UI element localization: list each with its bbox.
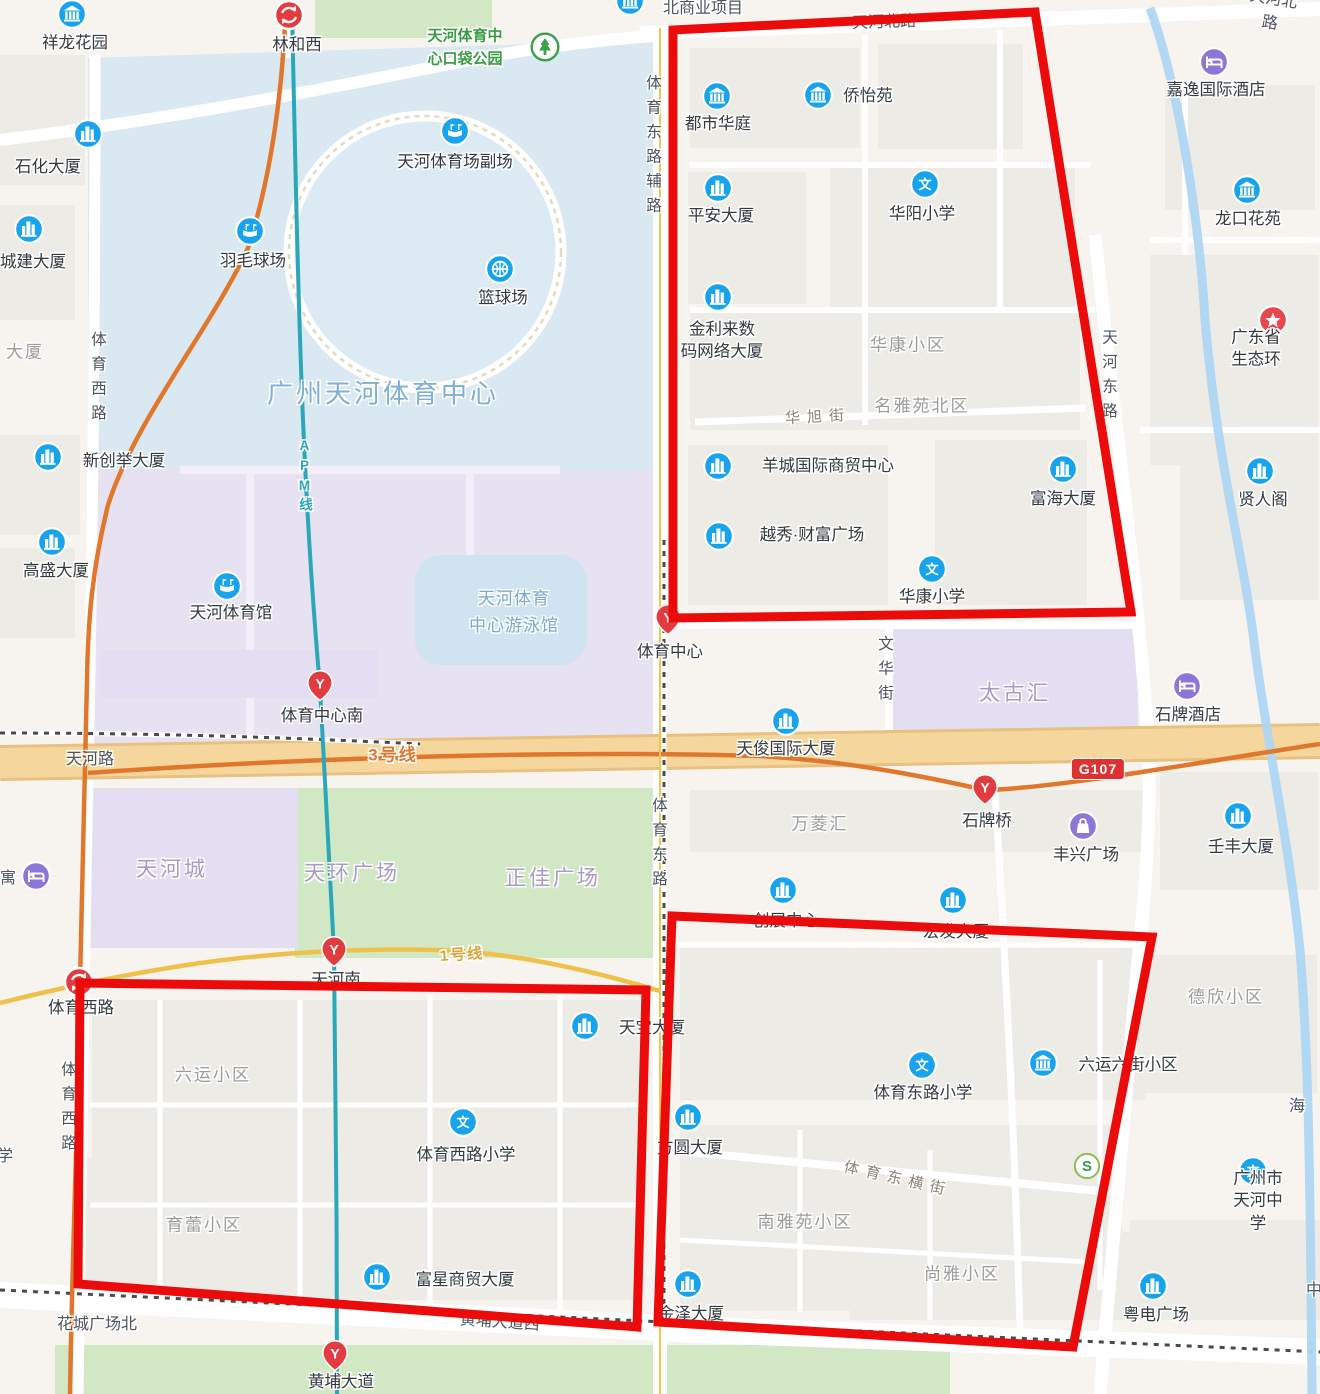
- stadium-icon[interactable]: [212, 571, 242, 601]
- poi-label: 广东省生态环: [1224, 327, 1288, 372]
- poi-label: 羽毛球场: [220, 250, 286, 272]
- office-icon[interactable]: [938, 885, 968, 915]
- metro-station-icon[interactable]: Y: [321, 936, 347, 968]
- poi-label: 祥龙花园: [42, 32, 108, 54]
- poi-label: 高盛大厦: [23, 560, 89, 582]
- poi-label: 体育中心: [637, 641, 703, 663]
- map-label: 文华街: [873, 635, 895, 709]
- map-label: 中: [1306, 1276, 1320, 1300]
- map-label: 华康小区: [870, 331, 946, 356]
- estate-icon[interactable]: [803, 80, 833, 110]
- poi-label: 壬丰大厦: [1208, 836, 1274, 858]
- school-icon[interactable]: 文: [448, 1107, 478, 1137]
- map-label: 1号线: [439, 942, 485, 966]
- poi-label: 粤电广场: [1123, 1304, 1189, 1326]
- map-label: 海: [1289, 1092, 1305, 1116]
- bank-icon[interactable]: S: [1073, 1152, 1101, 1180]
- poi-label: 贤人阁: [1238, 489, 1288, 511]
- svg-text:文: 文: [456, 1115, 470, 1130]
- map-label: 天环广场: [304, 857, 400, 887]
- stadium-icon[interactable]: [235, 216, 265, 246]
- poi-label: 天河体育馆: [190, 602, 273, 624]
- interchange-icon[interactable]: [273, 0, 305, 31]
- map-label: 天河东路: [1097, 329, 1119, 427]
- poi-label: 石化大厦: [15, 156, 81, 178]
- map-label: 六运小区: [175, 1061, 251, 1086]
- hotel-icon[interactable]: [21, 861, 51, 891]
- poi-label: 嘉逸国际酒店: [1167, 79, 1266, 101]
- poi-label: 天河南: [311, 969, 361, 991]
- office-icon[interactable]: [704, 521, 734, 551]
- estate-icon[interactable]: [615, 0, 645, 16]
- map-label: 万菱汇: [792, 810, 849, 835]
- map-label: 正佳广场: [505, 862, 601, 892]
- office-icon[interactable]: [673, 1102, 703, 1132]
- poi-label: 石牌桥: [962, 810, 1012, 832]
- office-icon[interactable]: [703, 282, 733, 312]
- map-label: 天河北路: [852, 7, 917, 33]
- map-label: 名雅苑北区: [875, 392, 970, 417]
- map-label: 德欣小区: [1188, 983, 1264, 1008]
- poi-label: 华康小学: [899, 586, 965, 608]
- map-label: 黄埔大道西: [459, 1305, 540, 1335]
- svg-text:文: 文: [925, 562, 939, 577]
- poi-label: 黄埔大道: [308, 1371, 374, 1393]
- poi-label: 北商业项目: [663, 0, 743, 20]
- office-icon[interactable]: [1138, 1271, 1168, 1301]
- basketball-icon[interactable]: [485, 254, 515, 284]
- office-icon[interactable]: [1223, 801, 1253, 831]
- map-label: 尚雅小区: [924, 1260, 1000, 1285]
- map-label: 体育东路辅路: [641, 75, 663, 222]
- svg-text:Y: Y: [315, 676, 325, 692]
- estate-icon[interactable]: [702, 81, 732, 111]
- map-label: 大厦: [6, 338, 44, 363]
- poi-label: 新创举大厦: [83, 450, 166, 472]
- poi-label: 篮球场: [478, 287, 528, 309]
- map-label: 华旭街: [784, 404, 851, 428]
- map-label: APM线: [294, 438, 314, 517]
- poi-label: 体育西路小学: [417, 1144, 516, 1166]
- poi-layer: 祥龙花园林和西天河体育中 心口袋公园北商业项目石化大厦城建大厦天河体育场副场羽毛…: [0, 0, 1320, 1394]
- map-label: 天河体育 中心游泳馆: [469, 585, 559, 639]
- poi-label: 天河体育场副场: [397, 151, 513, 173]
- office-icon[interactable]: [37, 527, 67, 557]
- poi-label: 天河体育中 心口袋公园: [427, 26, 502, 71]
- office-icon[interactable]: [14, 214, 44, 244]
- metro-station-icon[interactable]: Y: [322, 1340, 348, 1372]
- map-label: 3号线: [368, 741, 417, 766]
- poi-label: 六运六街小区: [1079, 1054, 1178, 1076]
- estate-icon[interactable]: [1232, 175, 1262, 205]
- poi-label: 方圆大厦: [657, 1137, 723, 1159]
- svg-text:S: S: [1082, 1158, 1092, 1175]
- poi-label: 富星商贸大厦: [416, 1269, 515, 1291]
- school-icon[interactable]: 文: [910, 169, 940, 199]
- map-label: 天河路: [66, 745, 114, 769]
- park-icon[interactable]: [530, 32, 560, 62]
- school-icon[interactable]: 文: [907, 1050, 937, 1080]
- poi-label: 侨怡苑: [843, 85, 893, 107]
- office-icon[interactable]: [1245, 456, 1275, 486]
- poi-label: 越秀·财富广场: [760, 524, 865, 546]
- map-label: 天河城: [136, 853, 208, 883]
- poi-label: 创展中心: [753, 910, 819, 932]
- poi-label: 体育中心南: [281, 705, 364, 727]
- poi-label: 宏发大厦: [923, 921, 989, 943]
- estate-icon[interactable]: [57, 0, 87, 29]
- poi-label: 体育西路: [48, 997, 114, 1019]
- metro-station-icon[interactable]: Y: [655, 604, 681, 636]
- office-icon[interactable]: [73, 119, 103, 149]
- map-label: 南雅苑小区: [758, 1208, 853, 1233]
- map-label: 体育东横街: [842, 1155, 954, 1200]
- map-label: 天河北路: [1245, 0, 1300, 36]
- poi-label: 林和西: [272, 34, 322, 56]
- hotel-icon[interactable]: [1172, 671, 1202, 701]
- svg-text:Y: Y: [329, 942, 339, 958]
- stadium-icon[interactable]: [440, 116, 470, 146]
- hotel-icon[interactable]: [1199, 47, 1229, 77]
- poi-label: 石牌酒店: [1155, 704, 1221, 726]
- office-icon[interactable]: [703, 451, 733, 481]
- svg-text:Y: Y: [980, 780, 990, 796]
- estate-icon[interactable]: [1028, 1048, 1058, 1078]
- office-icon[interactable]: [362, 1262, 392, 1292]
- map-label: 育蕾小区: [166, 1211, 242, 1236]
- svg-text:文: 文: [918, 177, 932, 192]
- poi-label: 城建大厦: [0, 251, 66, 273]
- poi-label: 羊城国际商贸中心: [762, 455, 894, 477]
- poi-label: 广州市天河中学: [1227, 1168, 1289, 1235]
- map-label: 太古汇: [979, 677, 1051, 707]
- map-label: 花城广场北: [57, 1310, 137, 1334]
- map-label: 体育西路: [56, 1061, 78, 1159]
- poi-label: 都市华庭: [685, 113, 751, 135]
- poi-label: 金泽大厦: [658, 1303, 724, 1325]
- map-label: 寓: [0, 864, 16, 888]
- metro-station-icon[interactable]: Y: [307, 670, 333, 702]
- svg-text:文: 文: [915, 1058, 929, 1073]
- map-label: 体育东路: [647, 797, 669, 895]
- school-icon[interactable]: 文: [917, 554, 947, 584]
- map-label: 广州天河体育中心: [267, 374, 499, 411]
- poi-label: 华阳小学: [889, 203, 955, 225]
- shopping-icon[interactable]: [1068, 811, 1098, 841]
- office-icon[interactable]: [570, 1011, 600, 1041]
- office-icon[interactable]: [768, 875, 798, 905]
- map-canvas[interactable]: 祥龙花园林和西天河体育中 心口袋公园北商业项目石化大厦城建大厦天河体育场副场羽毛…: [0, 0, 1320, 1394]
- office-icon[interactable]: [771, 706, 801, 736]
- office-icon[interactable]: [703, 173, 733, 203]
- poi-label: 龙口花苑: [1215, 208, 1281, 230]
- poi-label: 平安大厦: [688, 205, 754, 227]
- poi-label: 富海大厦: [1030, 488, 1096, 510]
- poi-label: 天宝大厦: [619, 1017, 685, 1039]
- office-icon[interactable]: [33, 442, 63, 472]
- poi-label: 天俊国际大厦: [737, 738, 836, 760]
- svg-text:Y: Y: [330, 1346, 340, 1362]
- poi-label: 丰兴广场: [1053, 844, 1119, 866]
- map-label: 学: [0, 1142, 13, 1166]
- poi-label: 体育东路小学: [874, 1082, 973, 1104]
- interchange-icon[interactable]: [63, 966, 95, 998]
- poi-label: 金利来数 码网络大厦: [681, 319, 764, 364]
- map-label: 体育西路: [86, 331, 108, 429]
- office-icon[interactable]: [1048, 454, 1078, 484]
- office-icon[interactable]: [673, 1269, 703, 1299]
- metro-station-icon[interactable]: Y: [972, 774, 998, 806]
- road-number-badge: G107: [1071, 758, 1125, 780]
- svg-text:Y: Y: [663, 610, 673, 626]
